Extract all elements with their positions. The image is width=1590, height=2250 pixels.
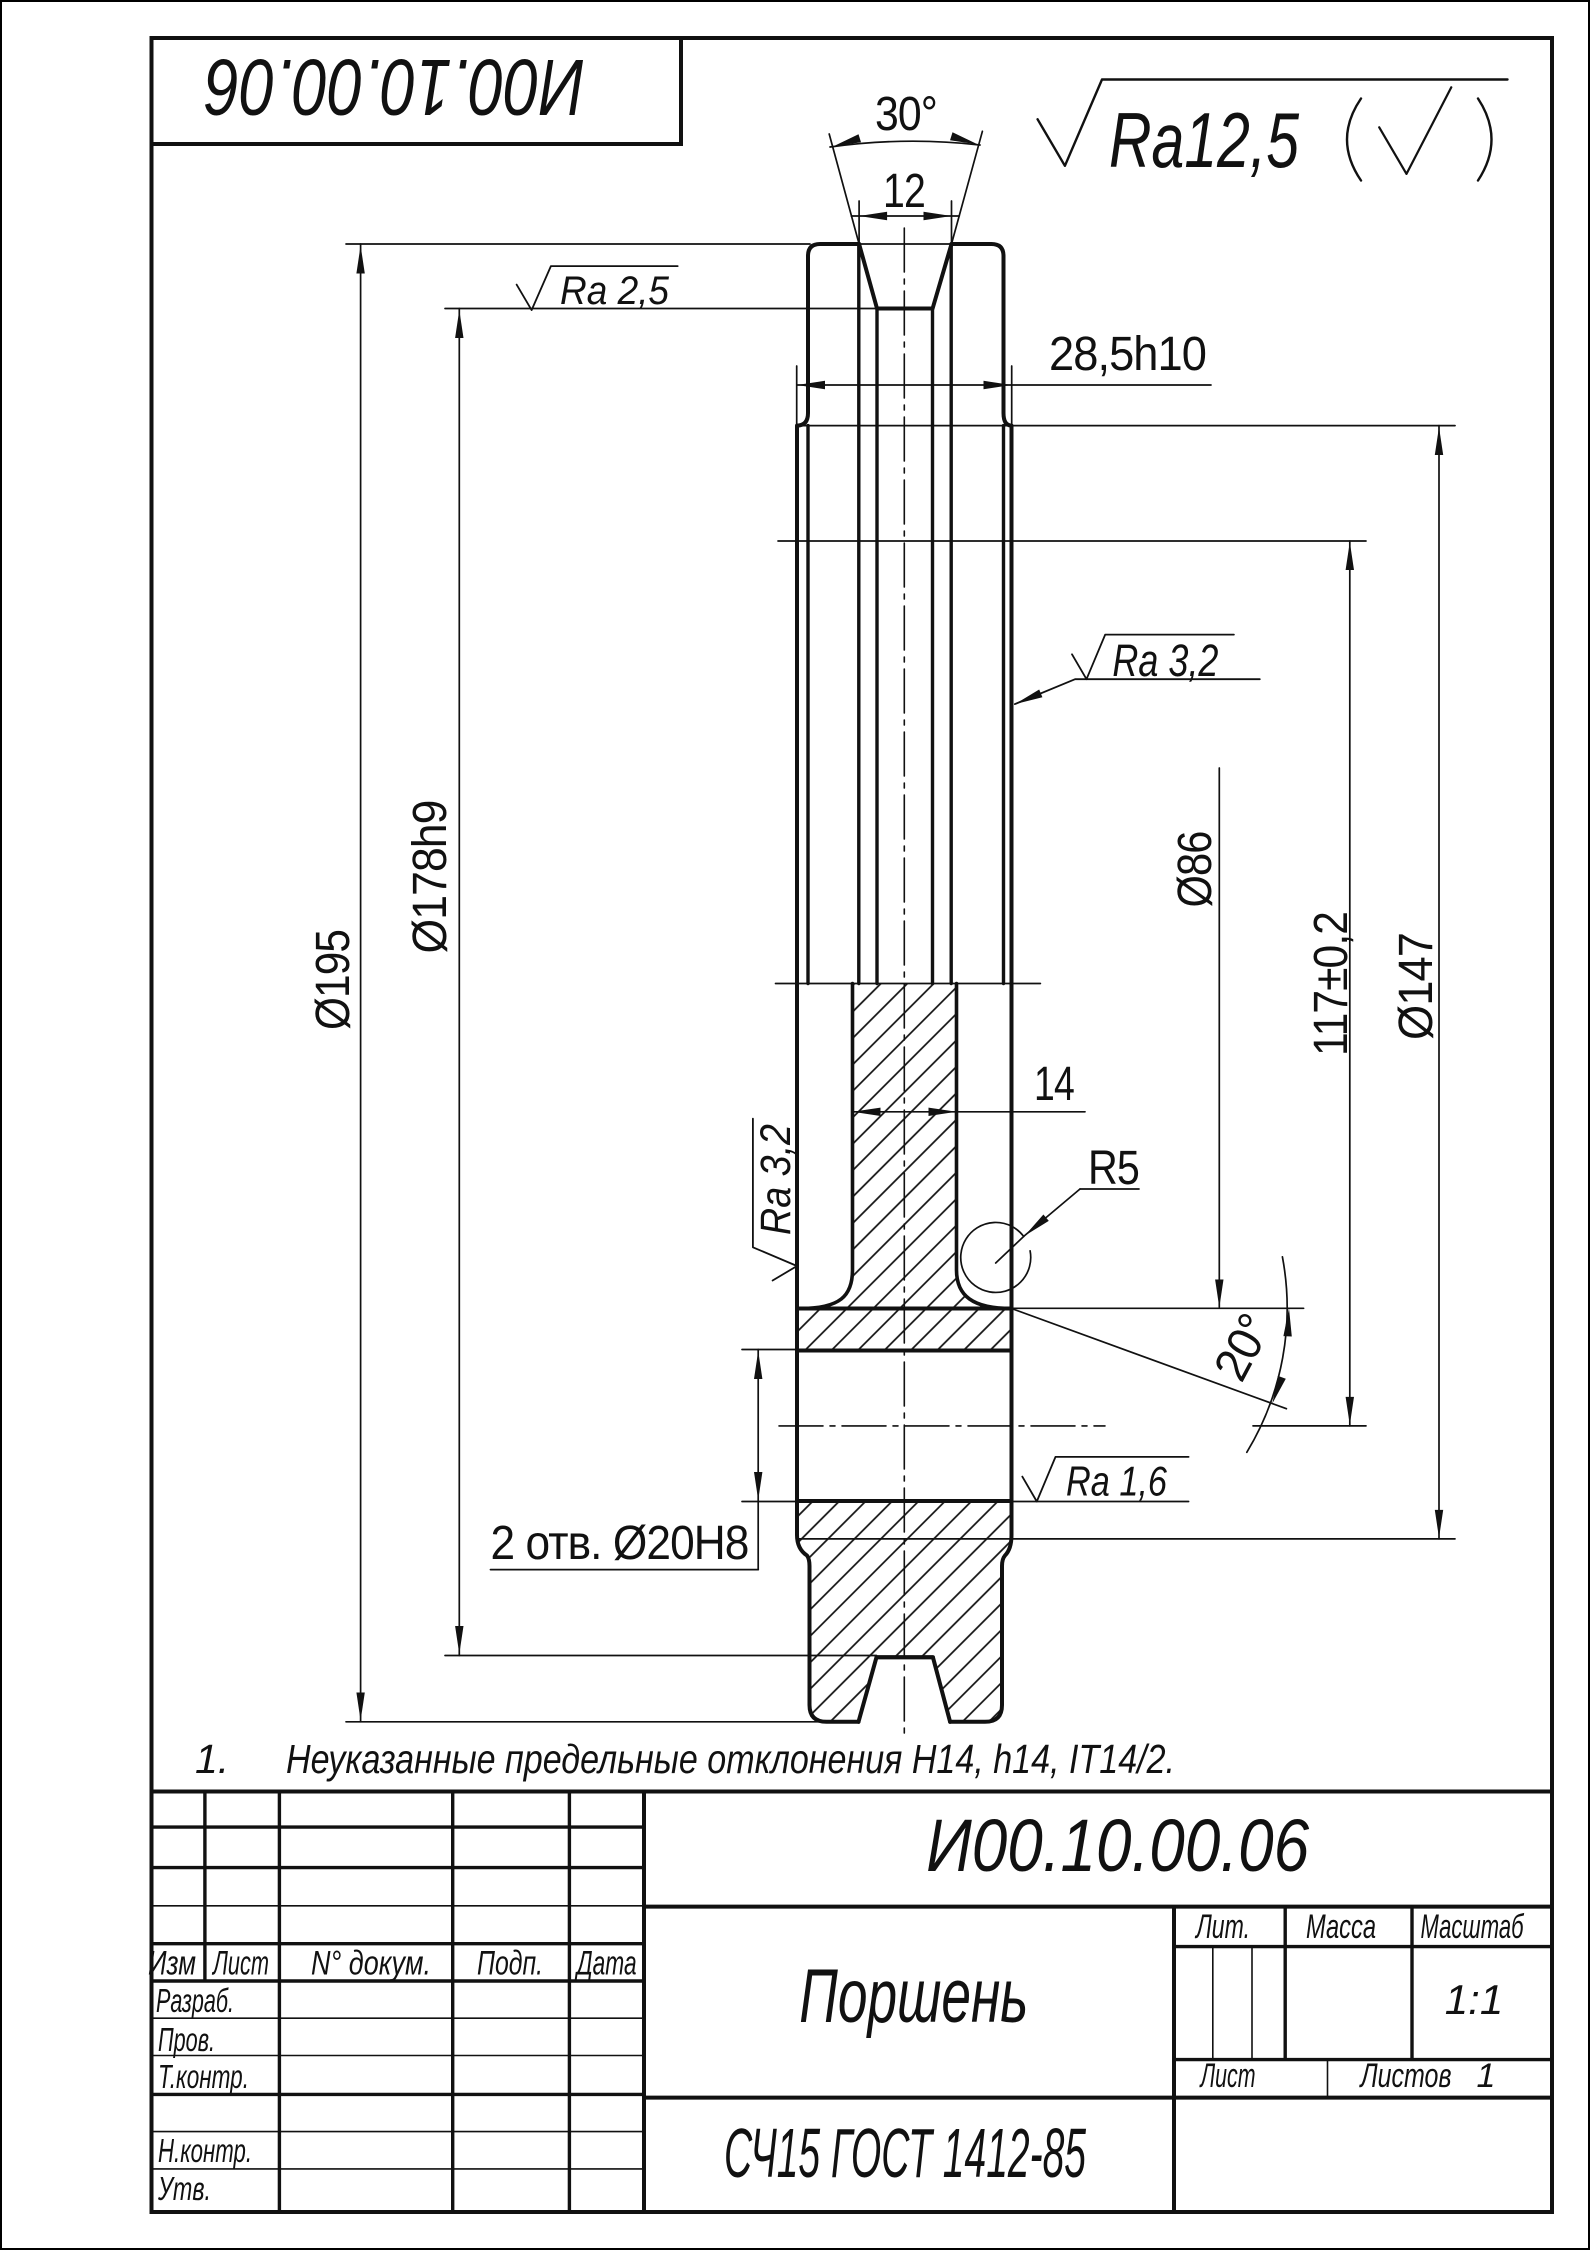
svg-text:Подп.: Подп. xyxy=(477,1945,543,1983)
svg-text:Н.контр.: Н.контр. xyxy=(158,2132,252,2169)
svg-text:СЧ15 ГОСТ 1412-85: СЧ15 ГОСТ 1412-85 xyxy=(724,2114,1087,2192)
svg-text:И00.10.00.06: И00.10.00.06 xyxy=(205,43,585,132)
svg-text:Неуказанные предельные откло: Неуказанные предельные отклонения H14, h… xyxy=(286,1736,1175,1782)
svg-text:Пров.: Пров. xyxy=(158,2021,215,2058)
svg-text:30°: 30° xyxy=(875,88,937,141)
svg-text:Поршень: Поршень xyxy=(799,1954,1028,2039)
svg-text:Изм: Изм xyxy=(148,1945,196,1983)
svg-text:1: 1 xyxy=(1477,2057,1496,2095)
svg-text:Масштаб: Масштаб xyxy=(1421,1908,1525,1946)
svg-text:Ø86: Ø86 xyxy=(1169,832,1222,908)
svg-text:28,5h10: 28,5h10 xyxy=(1049,328,1206,381)
svg-text:Листов: Листов xyxy=(1359,2057,1451,2095)
svg-text:Ra 3,2: Ra 3,2 xyxy=(752,1124,800,1235)
svg-text:Лист: Лист xyxy=(212,1945,269,1983)
svg-text:N° докум.: N° докум. xyxy=(311,1945,431,1983)
svg-text:И00.10.00.06: И00.10.00.06 xyxy=(926,1804,1310,1887)
svg-text:Ra12,5: Ra12,5 xyxy=(1109,96,1299,184)
svg-text:Ø178h9: Ø178h9 xyxy=(404,801,457,954)
svg-text:Дата: Дата xyxy=(574,1945,637,1983)
svg-text:Ra 2,5: Ra 2,5 xyxy=(560,269,670,313)
svg-text:14: 14 xyxy=(1034,1058,1074,1111)
svg-text:Ø147: Ø147 xyxy=(1390,933,1443,1040)
svg-text:Ra 1,6: Ra 1,6 xyxy=(1066,1458,1168,1505)
svg-text:Утв.: Утв. xyxy=(157,2170,211,2207)
svg-text:2 отв. Ø20H8: 2 отв. Ø20H8 xyxy=(491,1517,749,1570)
svg-text:1:1: 1:1 xyxy=(1445,1976,1503,2023)
svg-text:Т.контр.: Т.контр. xyxy=(158,2058,249,2095)
svg-text:Масса: Масса xyxy=(1306,1908,1376,1946)
svg-text:1.: 1. xyxy=(195,1736,229,1782)
svg-text:Лист: Лист xyxy=(1199,2057,1255,2095)
svg-text:Лит.: Лит. xyxy=(1195,1908,1250,1946)
svg-text:Ra 3,2: Ra 3,2 xyxy=(1112,635,1218,686)
svg-text:R5: R5 xyxy=(1088,1142,1139,1195)
svg-text:Разраб.: Разраб. xyxy=(156,1982,234,2019)
svg-text:12: 12 xyxy=(883,165,925,218)
svg-text:117±0,2: 117±0,2 xyxy=(1305,912,1358,1056)
svg-text:Ø195: Ø195 xyxy=(307,930,360,1030)
